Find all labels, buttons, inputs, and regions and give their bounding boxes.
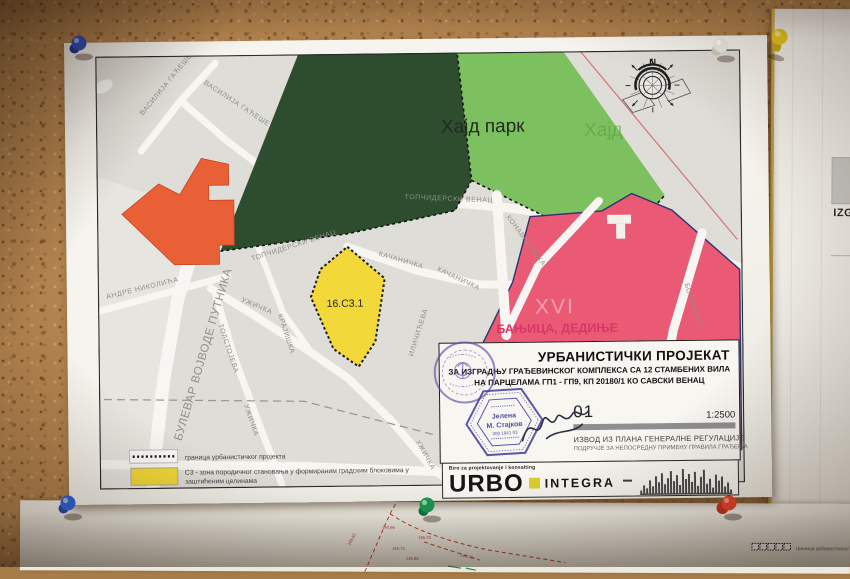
push-pin-blue-bottom-left bbox=[53, 492, 87, 529]
legend-zone-sample bbox=[131, 468, 178, 486]
title-block: УРБАНИСТИЧКИ ПРОЈЕКАТ ЗА ИЗГРАДЊУ ГРАЂЕВ… bbox=[438, 339, 740, 463]
district-cutout bbox=[616, 224, 625, 239]
survey-boundary-lines bbox=[365, 503, 565, 573]
compass-north-label: N bbox=[649, 57, 656, 68]
elevation-label: 145.62 bbox=[346, 532, 357, 546]
stamp-license-number: 300 1941 03 bbox=[492, 430, 518, 437]
elevation-label: 145.73 bbox=[392, 546, 406, 551]
brand-suffix: INTEGRA bbox=[545, 475, 615, 490]
logo-underline bbox=[623, 480, 632, 482]
source-line-1: ИЗВОД ИЗ ПЛАНА ГЕНЕРАЛНЕ РЕГУЛАЦИЈЕ bbox=[573, 433, 735, 444]
side-sheet-rule bbox=[831, 255, 850, 256]
legend-boundary-label: граница урбанистичког пројекта bbox=[185, 453, 286, 462]
district-name-label: БАЊИЦА, ДЕДИЊЕ bbox=[496, 321, 618, 336]
paper-crease bbox=[789, 9, 793, 506]
bottom-sheet-legend: граница урбанистичког пр bbox=[752, 543, 850, 552]
district-numeral: XVI bbox=[535, 295, 575, 318]
elevation-label: 145.66 bbox=[382, 525, 396, 530]
elevation-label: 146.75 bbox=[418, 535, 432, 540]
map-scale: 1:2500 bbox=[706, 409, 735, 420]
side-sheet-caption: IZG bbox=[833, 207, 850, 219]
side-sheet: IZG bbox=[768, 9, 850, 507]
side-sheet-thumbnail bbox=[831, 157, 850, 204]
elevation-labels: 145.62 145.66 146.75 145.73 145.88 146.7… bbox=[346, 525, 474, 562]
push-pin-white-top-right bbox=[706, 34, 740, 71]
signature bbox=[516, 394, 595, 457]
brand-name: URBO bbox=[449, 471, 524, 496]
urban-plan-sheet: Хајд парк Хајд XVI БАЊИЦА, ДЕДИЊЕ 16.С3.… bbox=[64, 35, 772, 505]
bottom-sheet-legend-caption: граница урбанистичког пр bbox=[796, 546, 850, 552]
divider-bar bbox=[573, 422, 735, 430]
paper-crease bbox=[819, 9, 823, 506]
elevation-label: 146.76 bbox=[460, 552, 474, 560]
push-pin-red-bottom-right bbox=[713, 492, 747, 529]
legend-zone-label-line2: заштићеним целинама bbox=[185, 477, 257, 486]
district-cutout bbox=[607, 215, 631, 224]
park-label-faint: Хајд bbox=[584, 120, 623, 141]
logo-block: Biro za projektovanje i konsalting URBO … bbox=[442, 459, 739, 498]
stamp-name-line1: Јелена bbox=[492, 412, 517, 421]
push-pin-blue-top-left bbox=[64, 32, 98, 69]
elevation-label: 145.88 bbox=[406, 556, 420, 561]
source-line-2: ПОДРУЧЈЕ ЗА НЕПОСРЕДНУ ПРИМЕНУ ПРАВИЛА Г… bbox=[574, 444, 736, 452]
push-pin-green-bottom bbox=[412, 494, 446, 531]
zone-code-label: 16.С3.1 bbox=[327, 298, 364, 310]
park-label: Хајд парк bbox=[441, 116, 525, 138]
brand-accent-square bbox=[529, 478, 540, 489]
